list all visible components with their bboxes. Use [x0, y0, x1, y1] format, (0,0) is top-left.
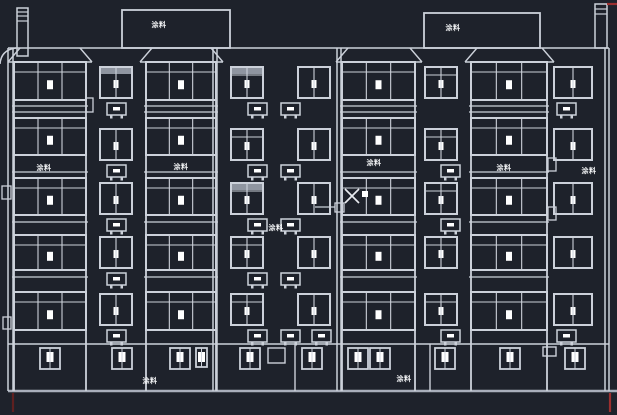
coating-label: 涂料: [497, 163, 512, 172]
window-handle: [376, 252, 382, 261]
window-handle: [47, 310, 53, 319]
window-handle: [178, 252, 184, 261]
coating-label: 涂料: [582, 166, 597, 175]
pickbox: [362, 191, 368, 197]
coating-label: 涂料: [143, 376, 158, 385]
window-handle: [376, 80, 382, 89]
coating-label: 涂料: [446, 23, 461, 32]
window-handle: [47, 196, 53, 205]
coating-label: 涂料: [367, 158, 382, 167]
window-handle: [376, 196, 382, 205]
window-handle: [376, 136, 382, 145]
coating-label: 涂料: [397, 374, 412, 383]
window-handle: [178, 196, 184, 205]
window-handle: [47, 252, 53, 261]
coating-label: 涂料: [37, 163, 52, 172]
window-handle: [47, 136, 53, 145]
coating-label: 涂料: [152, 20, 167, 29]
window-handle: [506, 252, 512, 261]
cad-canvas[interactable]: 涂料涂料涂料涂料涂料涂料涂料涂料涂料涂料: [0, 0, 617, 415]
window-handle: [506, 136, 512, 145]
coating-label: 涂料: [269, 223, 284, 232]
coating-label: 涂料: [174, 162, 189, 171]
window-handle: [376, 310, 382, 319]
window-handle: [178, 136, 184, 145]
window-handle: [178, 310, 184, 319]
elevation-drawing: 涂料涂料涂料涂料涂料涂料涂料涂料涂料涂料: [0, 0, 617, 415]
window-handle: [47, 80, 53, 89]
window-handle: [178, 80, 184, 89]
window-handle: [506, 310, 512, 319]
window-handle: [506, 80, 512, 89]
window-handle: [506, 196, 512, 205]
